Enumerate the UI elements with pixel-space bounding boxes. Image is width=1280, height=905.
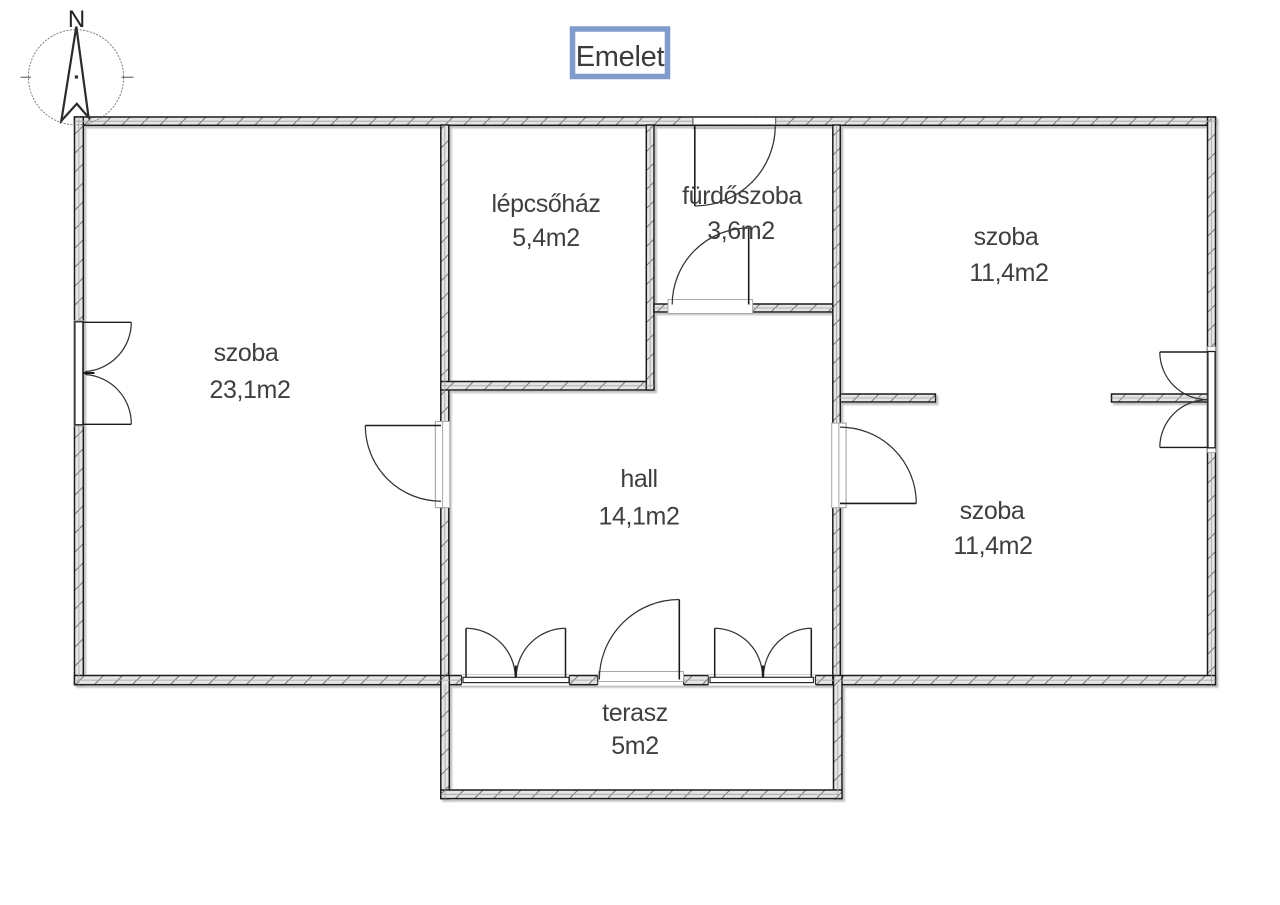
svg-text:szoba: szoba	[214, 339, 279, 367]
svg-text:szoba: szoba	[974, 223, 1039, 251]
svg-text:3,6m2: 3,6m2	[707, 217, 774, 245]
svg-text:14,1m2: 14,1m2	[599, 503, 680, 531]
svg-text:terasz: terasz	[602, 699, 668, 727]
svg-text:23,1m2: 23,1m2	[210, 376, 291, 404]
svg-text:5m2: 5m2	[611, 732, 658, 760]
svg-text:hall: hall	[620, 465, 657, 493]
svg-text:Emelet: Emelet	[576, 41, 665, 73]
svg-text:5,4m2: 5,4m2	[512, 224, 579, 252]
svg-text:szoba: szoba	[960, 497, 1025, 525]
svg-text:11,4m2: 11,4m2	[953, 532, 1032, 560]
svg-text:fürdőszoba: fürdőszoba	[682, 182, 802, 210]
svg-text:11,4m2: 11,4m2	[969, 259, 1048, 287]
svg-text:lépcsőház: lépcsőház	[492, 190, 601, 218]
svg-text:N: N	[68, 6, 85, 33]
